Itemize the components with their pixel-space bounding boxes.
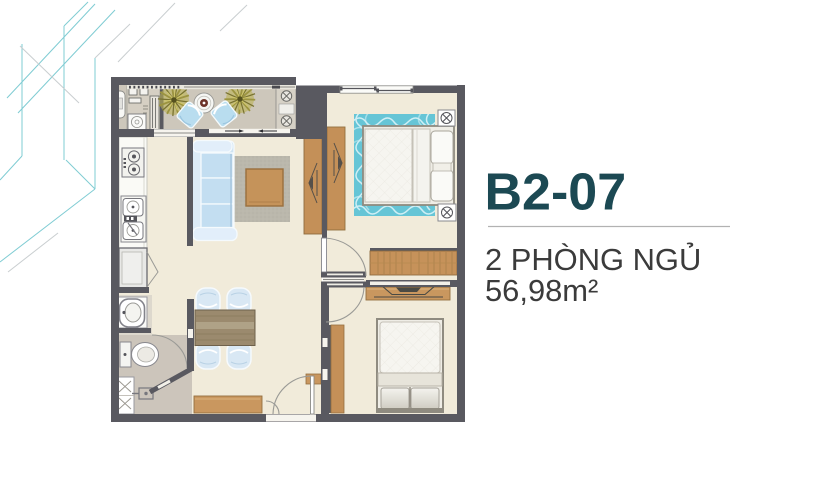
svg-text:2 PHÒNG NGỦ: 2 PHÒNG NGỦ: [485, 241, 701, 277]
svg-text:56,98m²: 56,98m²: [485, 273, 598, 308]
svg-text:B2-07: B2-07: [485, 164, 627, 222]
